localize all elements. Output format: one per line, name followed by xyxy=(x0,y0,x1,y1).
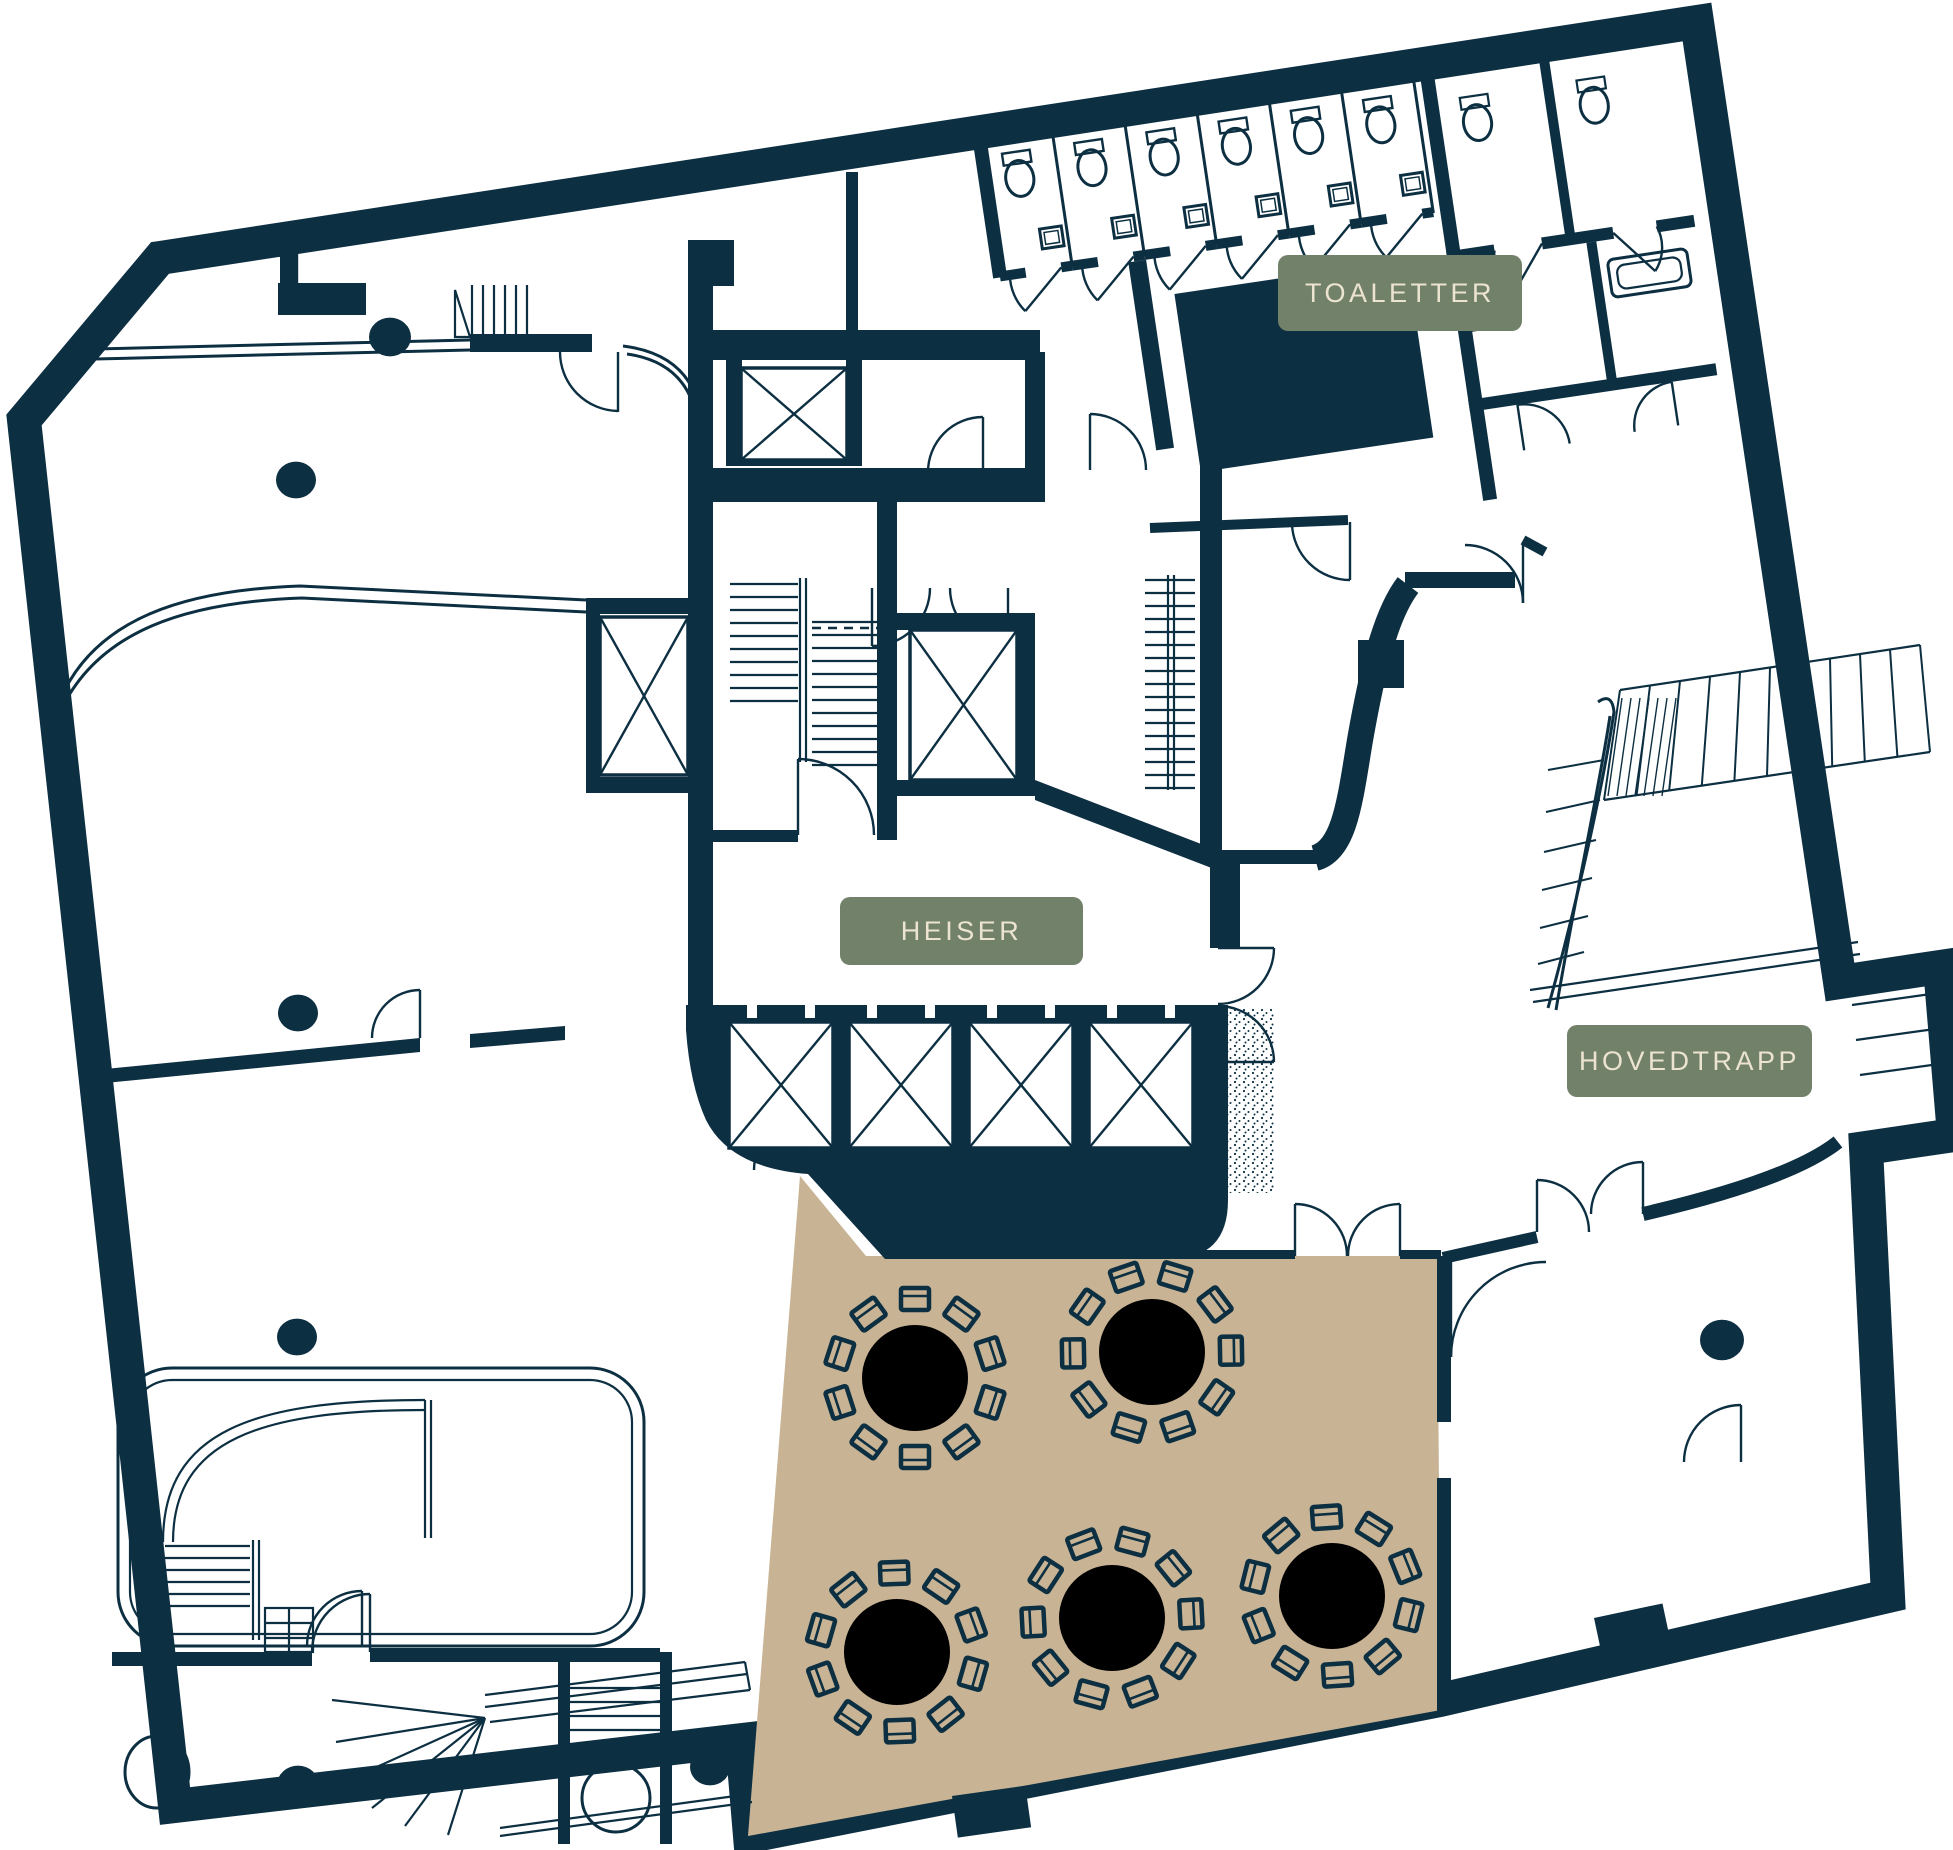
column-dot xyxy=(369,318,411,357)
column-dot xyxy=(1700,1320,1744,1360)
label-toaletter: TOALETTER xyxy=(1278,255,1522,331)
floor-plan: TOALETTER HEISER HOVEDTRAPP xyxy=(0,0,1953,1850)
column-dot xyxy=(277,1766,319,1805)
label-hovedtrapp: HOVEDTRAPP xyxy=(1567,1025,1812,1097)
column-dot xyxy=(278,995,318,1032)
column-dot xyxy=(277,1319,317,1356)
column-dot xyxy=(690,1749,730,1786)
column-dot xyxy=(276,462,316,499)
label-heiser: HEISER xyxy=(840,897,1083,965)
